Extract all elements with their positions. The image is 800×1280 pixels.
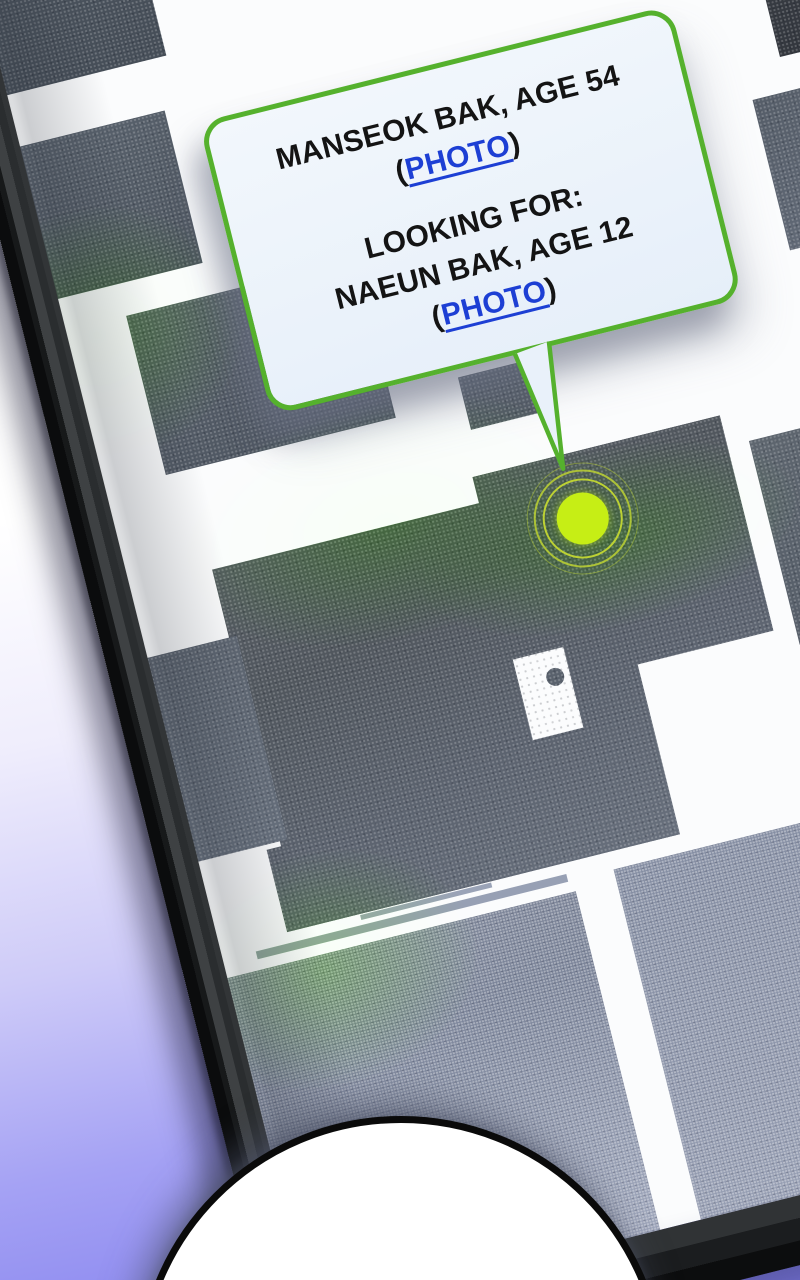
map-block [750,0,800,57]
comic-panel: MANSEOK BAK, AGE 54 (PHOTO) LOOKING FOR:… [0,0,800,1280]
map-small-structure [544,666,566,688]
map-block [753,27,800,250]
map-block [0,0,166,106]
phone: MANSEOK BAK, AGE 54 (PHOTO) LOOKING FOR:… [0,0,800,1280]
map-courtyard [513,647,584,740]
